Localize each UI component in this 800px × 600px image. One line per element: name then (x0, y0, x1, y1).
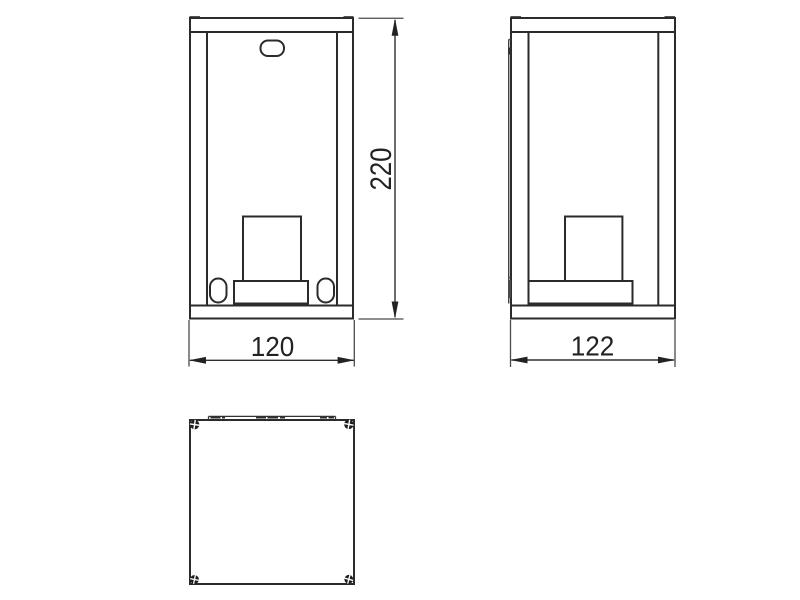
svg-text:122: 122 (571, 331, 615, 362)
svg-text:220: 220 (364, 147, 397, 190)
svg-text:120: 120 (251, 331, 295, 362)
